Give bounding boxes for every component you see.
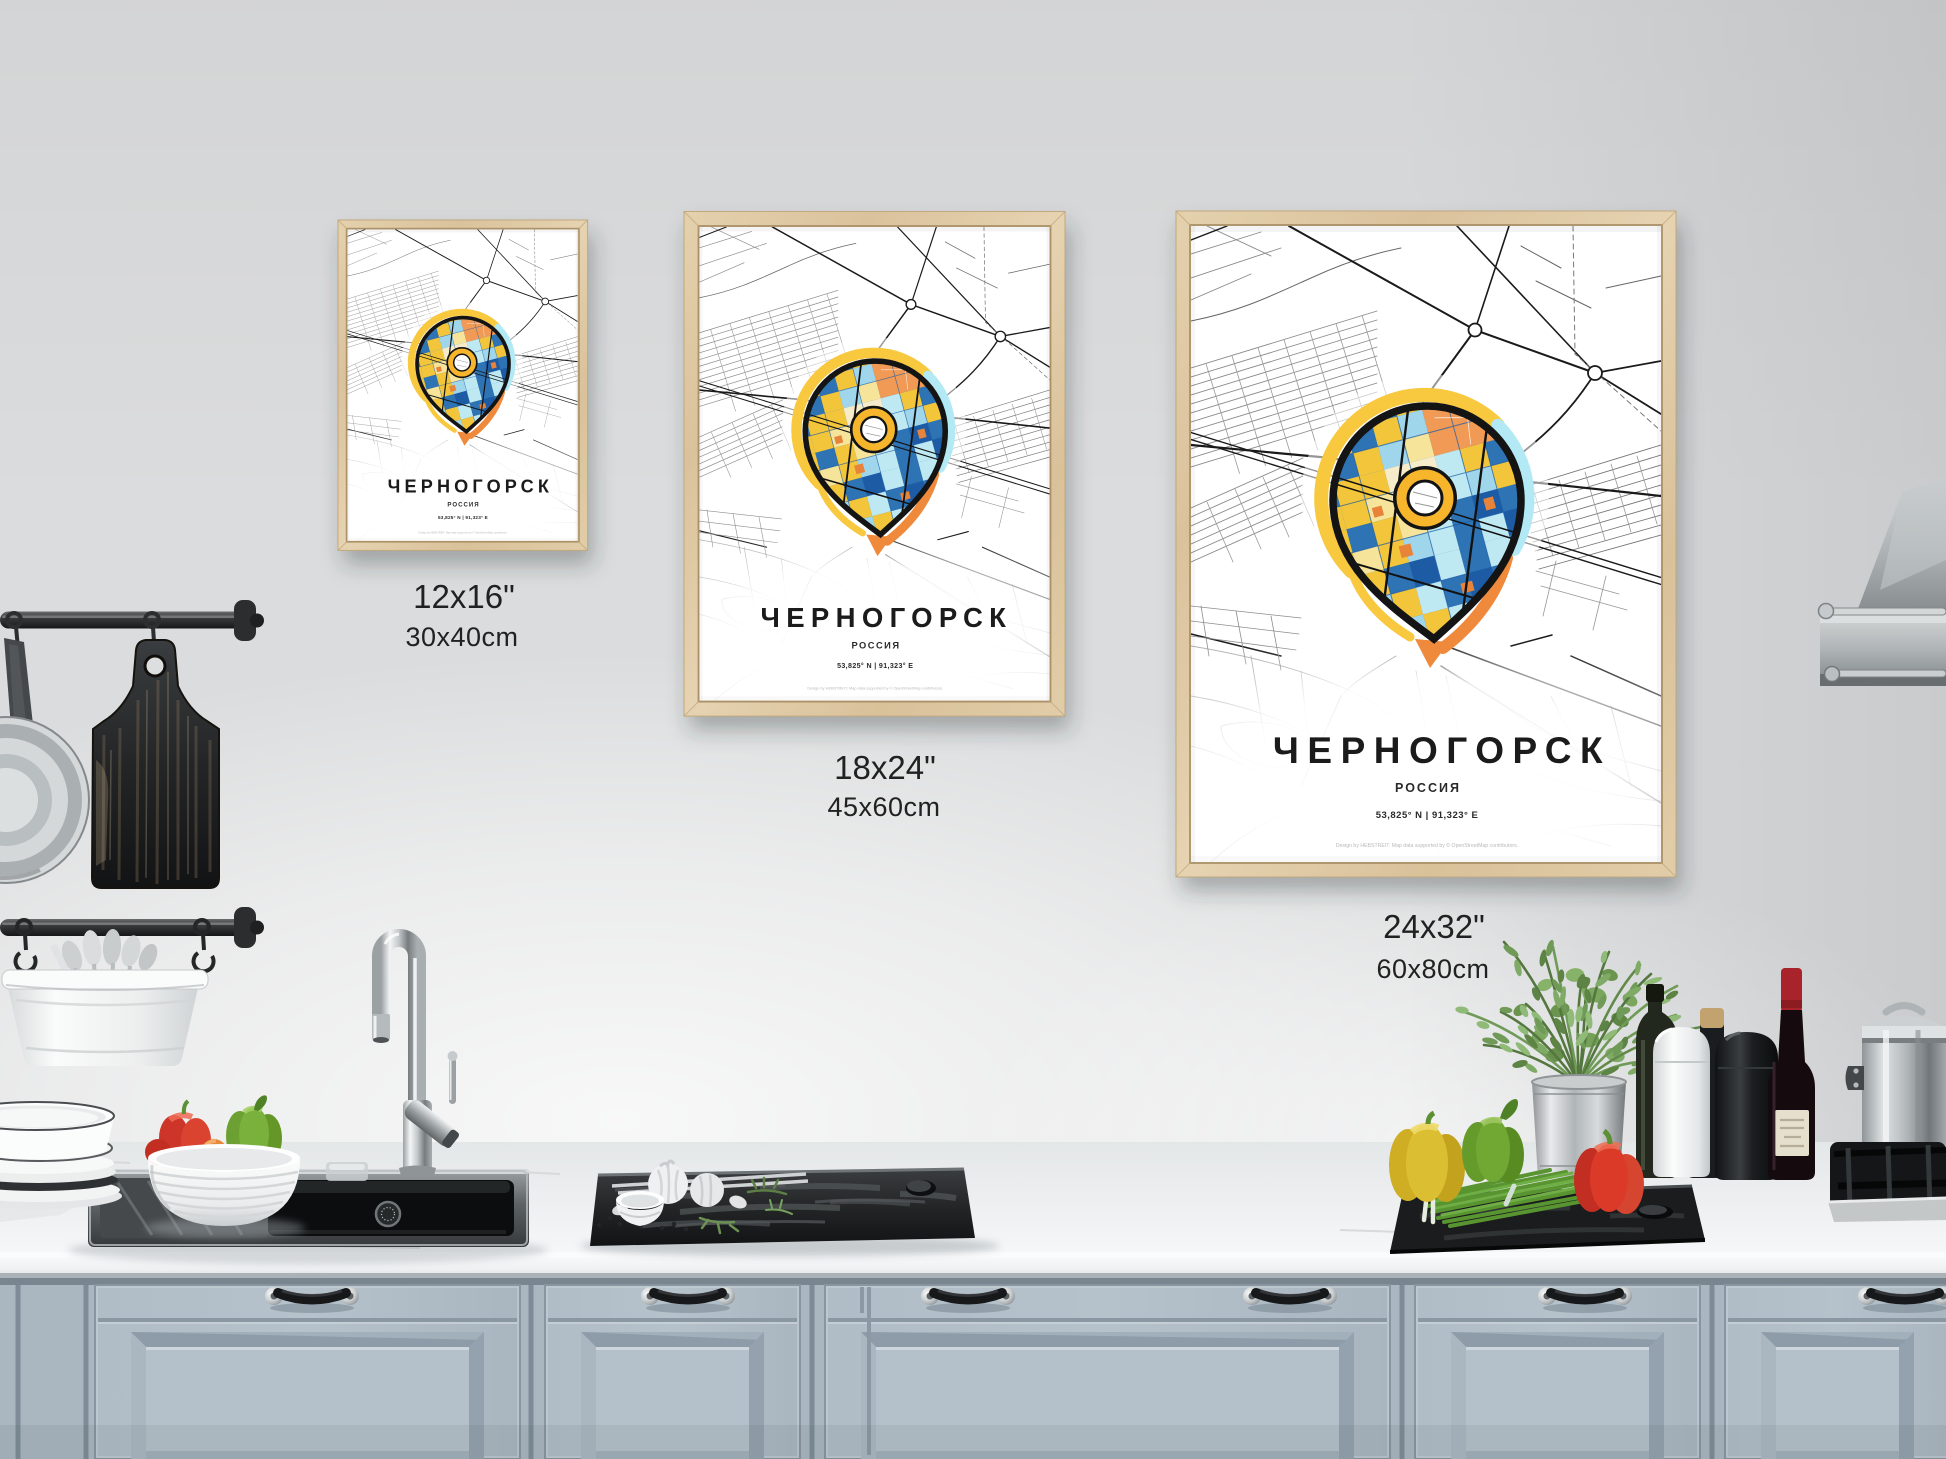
svg-text:12x16": 12x16"	[413, 578, 515, 615]
svg-text:45x60cm: 45x60cm	[827, 792, 940, 822]
svg-text:18x24": 18x24"	[834, 749, 936, 786]
svg-text:24x32": 24x32"	[1383, 908, 1485, 945]
svg-text:30x40cm: 30x40cm	[405, 622, 518, 652]
svg-text:60x80cm: 60x80cm	[1376, 954, 1489, 984]
